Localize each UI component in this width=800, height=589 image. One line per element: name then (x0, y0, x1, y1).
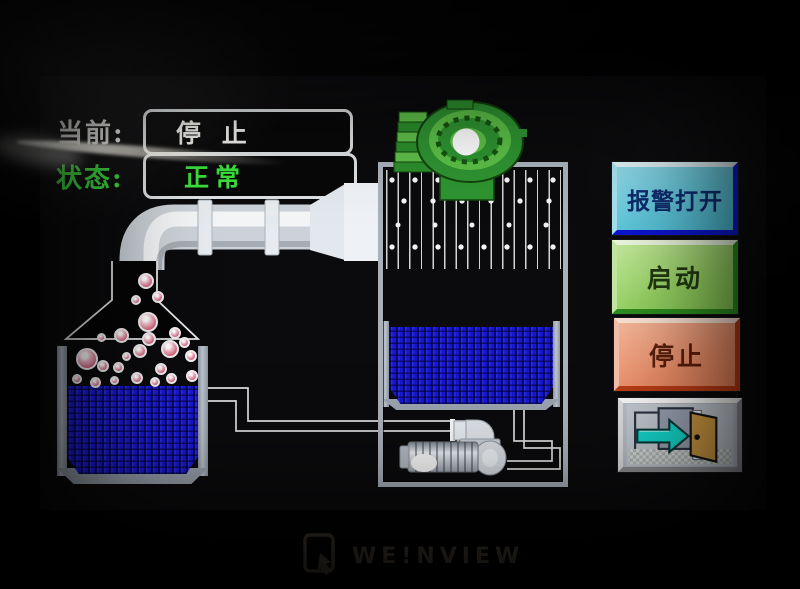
pipe-flange (265, 200, 279, 255)
alarm-open-button[interactable]: 报警打开 (612, 162, 738, 235)
bubble (155, 363, 167, 375)
hmi-photo: 当前: 停 止 状态: 正常 (0, 0, 800, 589)
exit-button[interactable] (618, 398, 742, 472)
bubble (185, 350, 197, 362)
small-tank-wall (198, 346, 208, 476)
bubble (90, 377, 101, 388)
bubble (152, 291, 164, 303)
brand-logo: WE!NVIEW (302, 533, 524, 579)
bubble (142, 332, 156, 346)
bubble (131, 372, 143, 384)
small-tank-wall (57, 346, 67, 476)
blower-fan-icon (392, 82, 534, 204)
stop-button[interactable]: 停止 (614, 318, 740, 391)
bubble (138, 273, 154, 289)
stop-button-label: 停止 (649, 337, 705, 373)
small-tank-liquid-level (67, 386, 198, 474)
bubble (113, 362, 124, 373)
bubble (186, 370, 198, 382)
bubble (133, 344, 147, 358)
start-button[interactable]: 启动 (612, 240, 738, 314)
bubble (161, 340, 179, 358)
bubble (150, 377, 160, 387)
bubble (110, 376, 119, 385)
bubble (169, 327, 181, 339)
bubble (131, 295, 141, 305)
bubble (97, 360, 109, 372)
bubble (97, 333, 106, 342)
bubble (166, 373, 177, 384)
brand-logo-text: WE!NVIEW (352, 544, 524, 569)
exit-door-icon (624, 404, 736, 466)
alarm-open-button-label: 报警打开 (627, 182, 723, 216)
bubble (72, 374, 82, 384)
brand-logo-icon (302, 533, 340, 579)
start-button-label: 启动 (647, 259, 703, 295)
pipe-reducer (310, 184, 345, 260)
tank-inlet-duct (344, 183, 380, 261)
bubble (114, 328, 129, 343)
bubble (76, 348, 98, 370)
bubble (138, 312, 158, 332)
bubble (179, 337, 190, 348)
bubble (122, 352, 131, 361)
pipe-flange (198, 200, 212, 255)
scrubber-tank-frame (378, 162, 568, 487)
